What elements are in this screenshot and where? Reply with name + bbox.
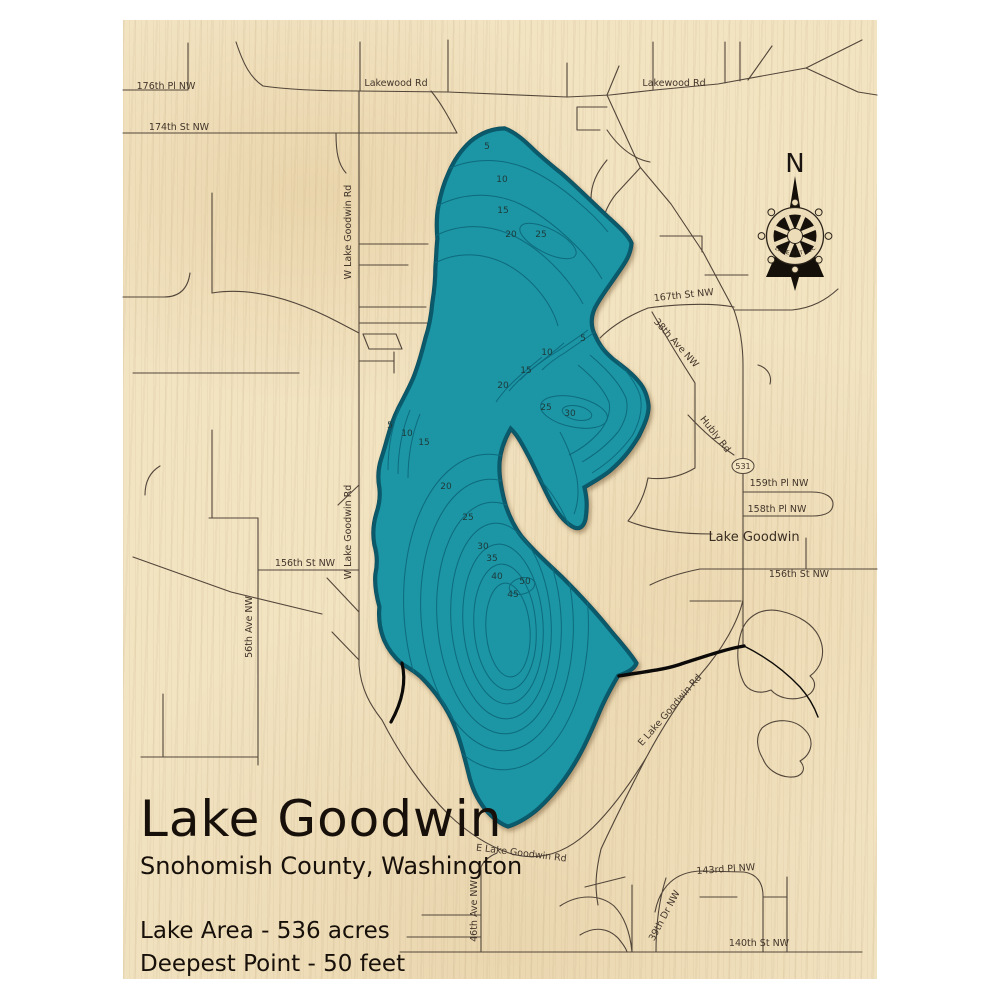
depth-label: 15 xyxy=(418,438,429,448)
depth-label: 25 xyxy=(540,403,551,413)
depth-label: 5 xyxy=(387,421,393,431)
road-label: 38th Ave NW xyxy=(651,317,701,371)
road-label: 176th Pl NW xyxy=(137,81,196,92)
depth-label: 10 xyxy=(496,175,508,185)
road-label: 174th St NW xyxy=(149,122,210,133)
depth-label: 15 xyxy=(497,206,508,216)
town-label: Lake Goodwin xyxy=(708,530,799,545)
road-label: W Lake Goodwin Rd xyxy=(343,185,354,280)
depth-label: 15 xyxy=(520,366,531,376)
road-label: Lakewood Rd xyxy=(364,78,427,89)
depth-label: 25 xyxy=(535,230,546,240)
depth-label: 20 xyxy=(497,381,509,391)
road-label: 158th Pl NW xyxy=(748,504,807,515)
depth-label: 30 xyxy=(477,542,489,552)
lake-map-svg: 531 N xyxy=(0,0,1000,1000)
depth-label: 5 xyxy=(484,142,490,152)
road-label: E Lake Goodwin Rd xyxy=(636,672,704,748)
route-marker-531: 531 xyxy=(732,459,754,474)
road-label: 46th Ave NW xyxy=(469,880,480,942)
road-label: 159th Pl NW xyxy=(750,478,809,489)
road-label: 39th Dr NW xyxy=(647,888,683,943)
depth-label: 10 xyxy=(541,348,553,358)
depth-label: 5 xyxy=(580,334,586,344)
depth-label: 50 xyxy=(519,577,531,587)
map-subtitle: Snohomish County, Washington xyxy=(140,852,522,880)
depth-label: 25 xyxy=(462,513,473,523)
road-label: 167th St NW xyxy=(653,287,715,304)
map-title: Lake Goodwin xyxy=(140,790,502,848)
road-label: W Lake Goodwin Rd xyxy=(343,485,354,580)
deepest-point-stat: Deepest Point - 50 feet xyxy=(140,951,405,977)
compass-north-label: N xyxy=(785,149,804,179)
depth-label: 40 xyxy=(491,572,503,582)
lake-area-stat: Lake Area - 536 acres xyxy=(140,918,390,944)
lake-art-print: 531 N xyxy=(0,0,1000,1000)
road-label: 143rd Pl NW xyxy=(696,862,756,877)
depth-label: 20 xyxy=(505,230,517,240)
depth-label: 35 xyxy=(486,554,497,564)
compass-rose: N xyxy=(758,149,832,291)
road-label: 156th St NW xyxy=(769,569,830,580)
ships-wheel-icon: LAKE ART LLC xyxy=(758,199,832,273)
depth-label: 45 xyxy=(507,590,518,600)
road-label: 156th St NW xyxy=(275,558,336,569)
depth-label: 10 xyxy=(401,429,413,439)
route-marker-label: 531 xyxy=(735,462,750,471)
road-label: 140th St NW xyxy=(729,938,790,949)
road-label: 56th Ave NW xyxy=(244,596,255,658)
depth-label: 30 xyxy=(564,409,576,419)
place-labels: Lake Goodwin xyxy=(708,530,799,545)
depth-label: 20 xyxy=(440,482,452,492)
road-label: Lakewood Rd xyxy=(642,78,705,89)
road-label: Hubly Rd xyxy=(697,414,732,455)
